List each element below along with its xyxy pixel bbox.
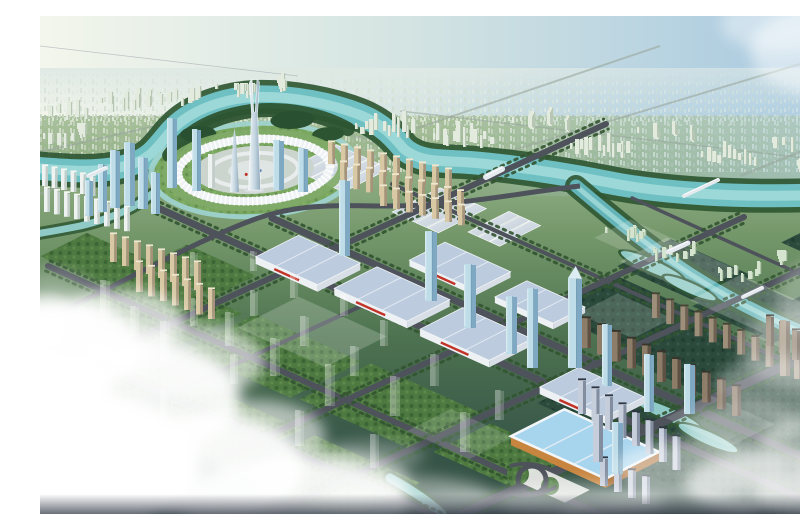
- render-canvas: [40, 16, 800, 514]
- city-master-plan-rendering: [40, 16, 800, 514]
- bottom-vignette: [40, 494, 800, 514]
